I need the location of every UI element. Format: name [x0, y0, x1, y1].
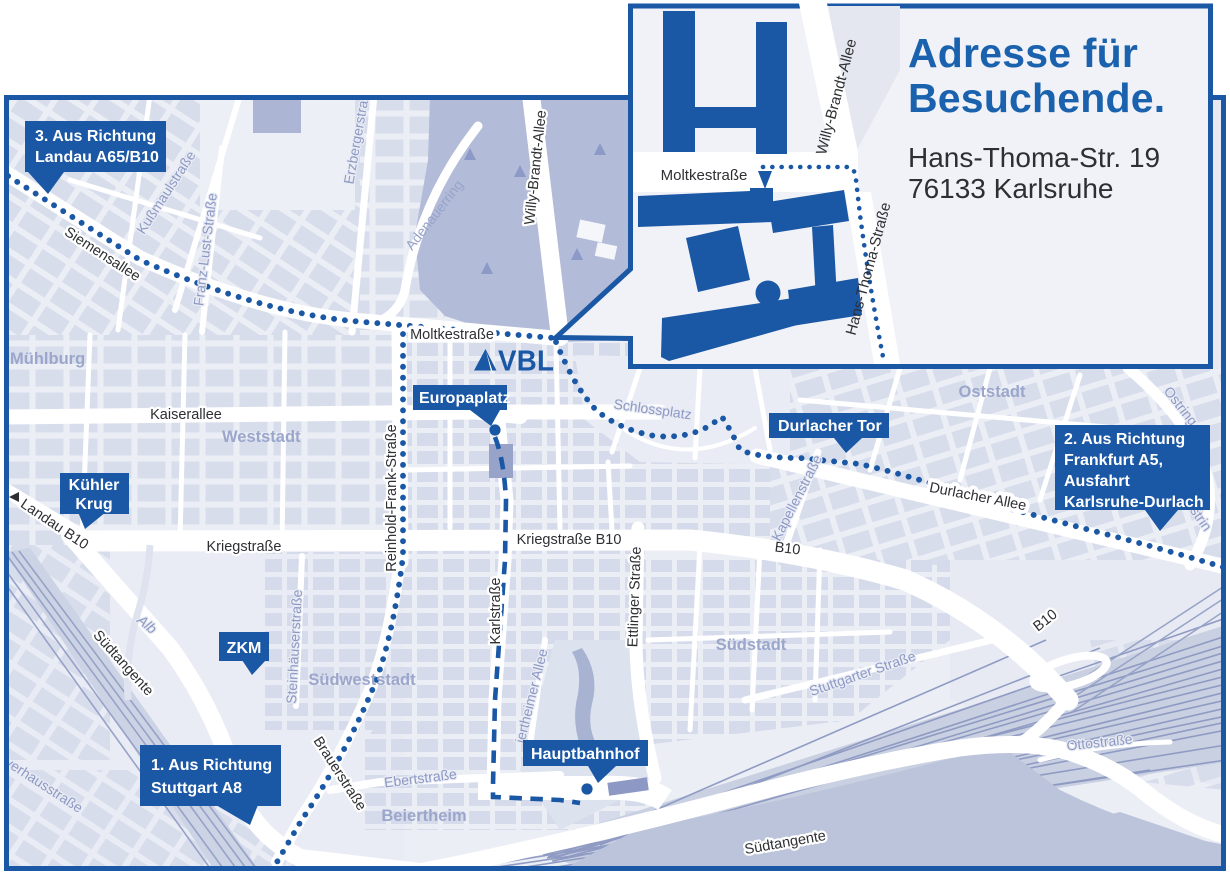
svg-text:76133 Karlsruhe: 76133 Karlsruhe [908, 173, 1113, 204]
svg-text:Kriegstraße: Kriegstraße [207, 539, 282, 555]
svg-text:Mühlburg: Mühlburg [10, 350, 85, 368]
svg-text:3. Aus Richtung: 3. Aus Richtung [35, 128, 156, 145]
svg-text:Kaiserallee: Kaiserallee [150, 407, 222, 423]
svg-text:Durlacher Tor: Durlacher Tor [778, 418, 882, 435]
svg-text:Hauptbahnhof: Hauptbahnhof [531, 746, 640, 763]
svg-text:Kriegstraße B10: Kriegstraße B10 [517, 532, 622, 548]
svg-text:Südweststadt: Südweststadt [308, 671, 416, 689]
svg-text:Europaplatz: Europaplatz [419, 390, 511, 407]
svg-text:Stuttgart A8: Stuttgart A8 [151, 780, 242, 797]
svg-text:Südstadt: Südstadt [716, 636, 787, 654]
svg-text:Moltkestraße: Moltkestraße [410, 327, 494, 343]
svg-text:B10: B10 [774, 540, 802, 559]
svg-text:Frankfurt A5,: Frankfurt A5, [1064, 452, 1163, 469]
svg-text:1. Aus Richtung: 1. Aus Richtung [151, 757, 272, 774]
svg-text:Oststadt: Oststadt [959, 383, 1026, 401]
svg-text:Landau A65/B10: Landau A65/B10 [35, 149, 159, 166]
svg-text:Beiertheim: Beiertheim [381, 807, 466, 825]
svg-text:Karlsruhe-Durlach: Karlsruhe-Durlach [1064, 494, 1204, 511]
svg-text:Reinhold-Frank-Straße: Reinhold-Frank-Straße [384, 424, 400, 571]
svg-text:Kühler: Kühler [69, 477, 120, 494]
svg-text:VBL: VBL [498, 345, 554, 376]
svg-text:2. Aus Richtung: 2. Aus Richtung [1064, 431, 1185, 448]
svg-text:ZKM: ZKM [227, 640, 262, 657]
svg-text:Adresse für: Adresse für [908, 30, 1138, 76]
svg-text:Weststadt: Weststadt [222, 428, 301, 446]
svg-text:Moltkestraße: Moltkestraße [661, 167, 748, 184]
svg-text:Ausfahrt: Ausfahrt [1064, 473, 1130, 490]
svg-text:Karlstraße: Karlstraße [488, 578, 504, 645]
svg-text:Hans-Thoma-Str. 19: Hans-Thoma-Str. 19 [908, 142, 1160, 173]
svg-text:Besuchende.: Besuchende. [908, 75, 1165, 121]
svg-text:Krug: Krug [75, 496, 112, 513]
